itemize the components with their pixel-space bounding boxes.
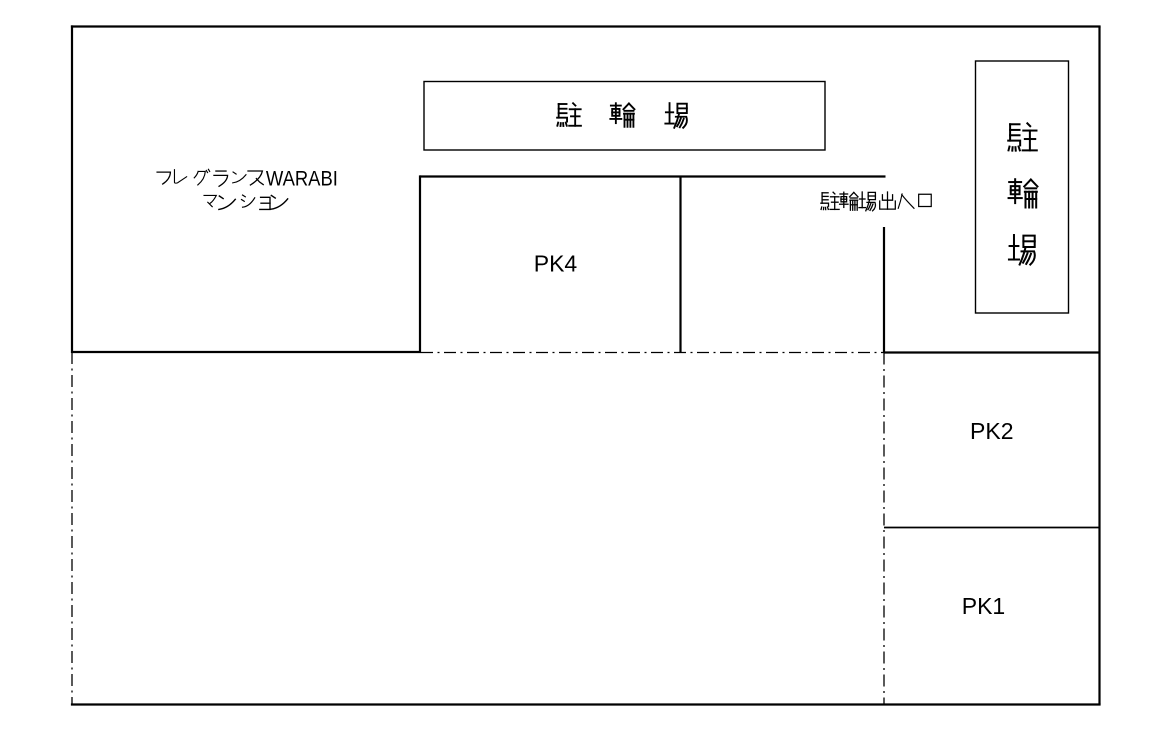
svg-text:PK4: PK4	[534, 250, 578, 276]
svg-text:PK1: PK1	[962, 593, 1005, 619]
svg-text:PK2: PK2	[970, 418, 1013, 444]
svg-text:WARABI: WARABI	[266, 167, 338, 191]
